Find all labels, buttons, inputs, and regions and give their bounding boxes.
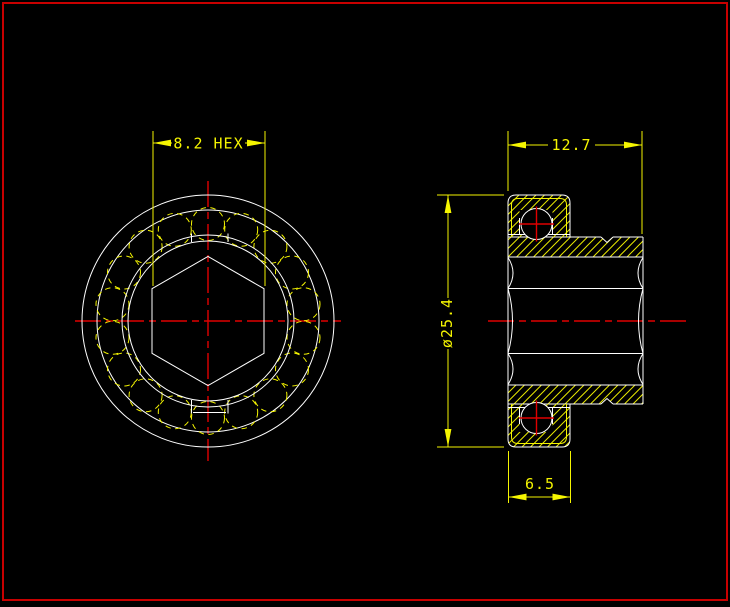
shell-top-section [508, 195, 570, 242]
sleeve-top-band-hatch [508, 237, 643, 257]
dim-text-shell-width: 6.5 [525, 475, 555, 493]
cad-drawing-canvas: 8.2 HEX [0, 0, 730, 607]
sleeve-bottom-band-hatch [508, 385, 643, 404]
dim-text-hex-width: 8.2 HEX [173, 135, 243, 153]
drawing-background [0, 0, 730, 607]
shell-bottom-section [508, 401, 570, 448]
dim-text-outer-diameter: ø25.4 [438, 298, 456, 348]
dim-text-overall-width: 12.7 [551, 136, 591, 154]
